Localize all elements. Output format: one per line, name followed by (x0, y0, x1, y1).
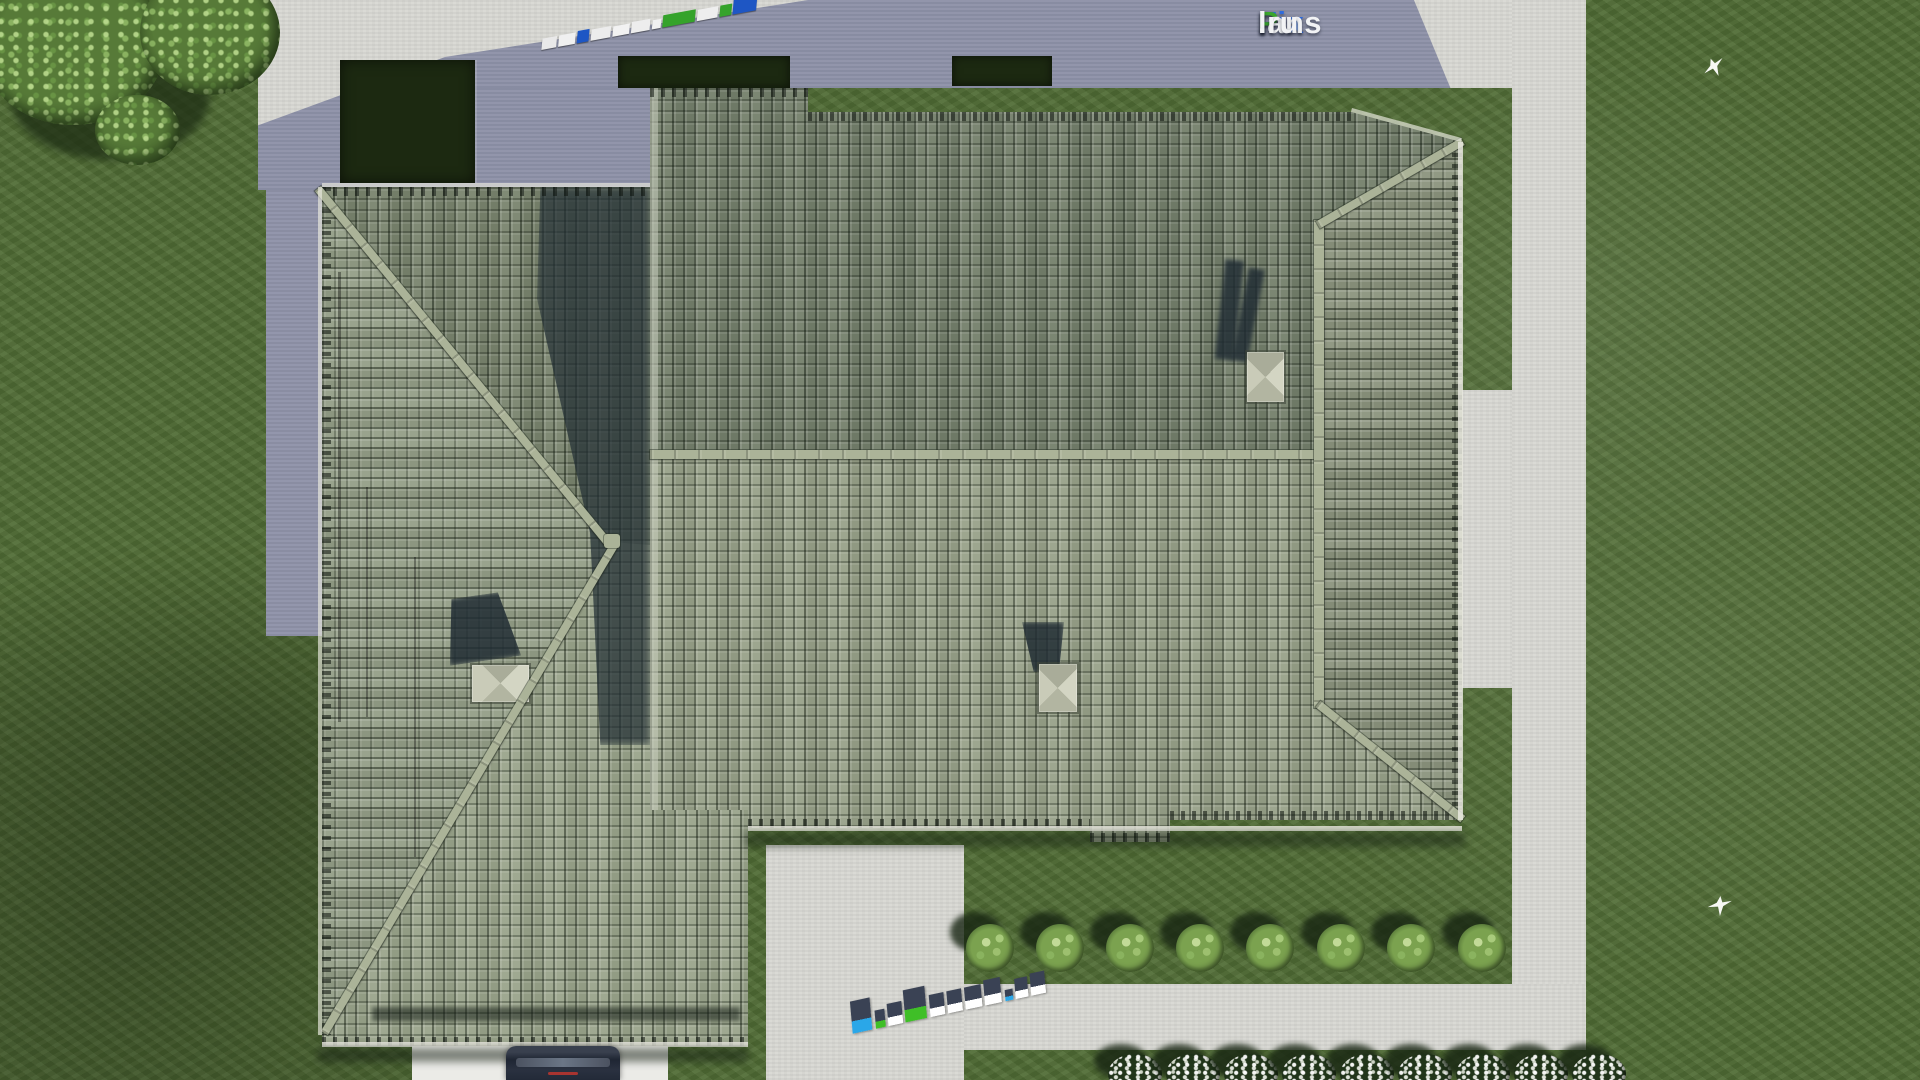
hedge-top-center (618, 56, 790, 88)
watermark-block (964, 984, 983, 1010)
tree-canopy (95, 95, 180, 165)
bush (1176, 924, 1224, 972)
car-taillight (548, 1072, 578, 1075)
walkway-right-widening (1462, 390, 1512, 688)
path-bottom-vertical (766, 845, 964, 1080)
main-bottom-fascia (748, 826, 1462, 831)
bush (1246, 924, 1294, 972)
watermark-block (874, 1009, 885, 1029)
patio-side-column (266, 190, 322, 636)
bush (1387, 924, 1435, 972)
watermark-block (1014, 976, 1028, 999)
bush (1036, 924, 1084, 972)
wing-top-fascia (322, 183, 650, 187)
wing-course-step (414, 557, 416, 857)
hedge-top-right (952, 56, 1052, 86)
path-bottom-horizontal (964, 984, 1586, 1050)
wing-course-step (366, 487, 368, 717)
main-east-fascia (1458, 142, 1463, 820)
main-top-eave-right (808, 112, 1352, 121)
watermark-block (850, 997, 872, 1033)
wing-left-eave (322, 187, 331, 1035)
chimney-lower-cap (1039, 664, 1077, 712)
brand-logo-dotru: .ru (1258, 5, 1299, 41)
watermark-block (887, 1001, 904, 1026)
wing-eave-shadow-line (372, 1007, 740, 1021)
bird-icon (1701, 55, 1728, 80)
wing-apex (604, 534, 620, 548)
watermark-block (1005, 989, 1014, 1002)
main-west-fascia (650, 88, 658, 810)
wing-west-fascia (318, 187, 322, 1035)
wing-course-step (338, 272, 341, 722)
walkway-right (1512, 0, 1586, 1050)
watermark-block (903, 986, 927, 1023)
main-ground-shadow (745, 832, 1465, 847)
hedge-patio (340, 60, 475, 183)
main-ridge-vertical (1314, 220, 1324, 708)
bush (1317, 924, 1365, 972)
bush (1106, 924, 1154, 972)
bush (1458, 924, 1506, 972)
main-bottom-eave-c (1170, 811, 1462, 820)
watermark-block (929, 992, 946, 1017)
site-plan-render: FixPlans.ru (0, 0, 1920, 1080)
watermark-block (652, 19, 662, 30)
watermark-block (946, 988, 963, 1013)
main-top-eave-left (650, 88, 808, 97)
bush (966, 924, 1014, 972)
bird-icon (1707, 894, 1733, 917)
watermark-block (577, 29, 590, 44)
roof-main (650, 88, 1462, 842)
car (506, 1046, 620, 1080)
car-windshield (516, 1058, 610, 1067)
wing-top-eave (322, 187, 650, 196)
watermark-block (983, 977, 1002, 1006)
chimney-upper-cap (1247, 352, 1284, 402)
watermark-block (719, 3, 732, 17)
main-ridge-horizontal (650, 450, 1322, 459)
watermark-block (1029, 971, 1046, 996)
